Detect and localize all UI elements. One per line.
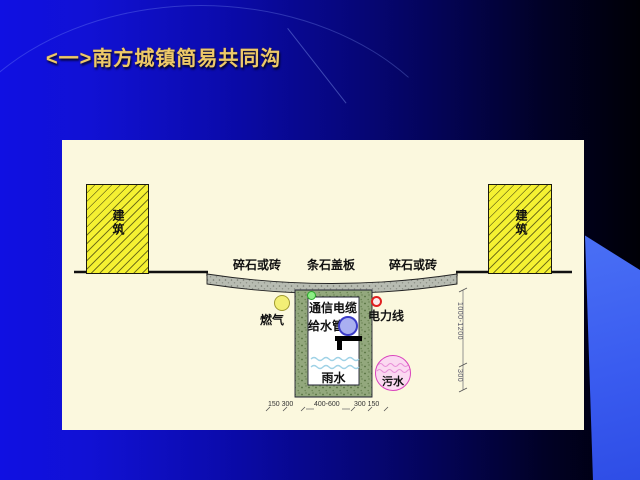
cross-section-diagram: 建筑 建筑 碎石或砖 条石盖板 碎石或砖 燃气 通信电缆 给水管 电力线 雨水 … <box>62 140 584 430</box>
dimension-width-right: 300 150 <box>354 401 379 408</box>
slide-title: <一>南方城镇简易共同沟 <box>46 42 281 71</box>
power-line-label: 电力线 <box>368 307 404 324</box>
building-right: 建筑 <box>488 184 552 274</box>
dimension-depth-main: 1000-1200 <box>456 302 463 340</box>
sewage-label: 污水 <box>376 373 410 389</box>
gas-label: 燃气 <box>260 311 284 328</box>
dimension-width-left: 150 300 <box>268 401 293 408</box>
water-pipe-icon <box>338 316 358 336</box>
surface-label-gravel-left: 碎石或砖 <box>232 256 282 273</box>
dimension-width-center: 400-600 <box>314 401 340 408</box>
building-right-label: 建筑 <box>513 209 530 237</box>
power-line-icon <box>371 296 382 307</box>
surface-label-cover-slab: 条石盖板 <box>306 256 356 273</box>
faucet-spout-icon <box>337 340 342 350</box>
gas-pipe-icon <box>274 295 290 311</box>
dimension-depth-bottom: 300 <box>456 369 463 382</box>
sewage-pipe-icon: 污水 <box>375 355 411 391</box>
rainwater-label: 雨水 <box>308 369 359 386</box>
slide: <一>南方城镇简易共同沟 <box>0 0 640 480</box>
background-swoosh <box>583 233 640 480</box>
telecom-label: 通信电缆 <box>309 299 357 316</box>
building-left-label: 建筑 <box>110 209 127 237</box>
building-left: 建筑 <box>86 184 149 274</box>
surface-label-gravel-right: 碎石或砖 <box>388 256 438 273</box>
background-diagonal-line <box>287 28 346 103</box>
